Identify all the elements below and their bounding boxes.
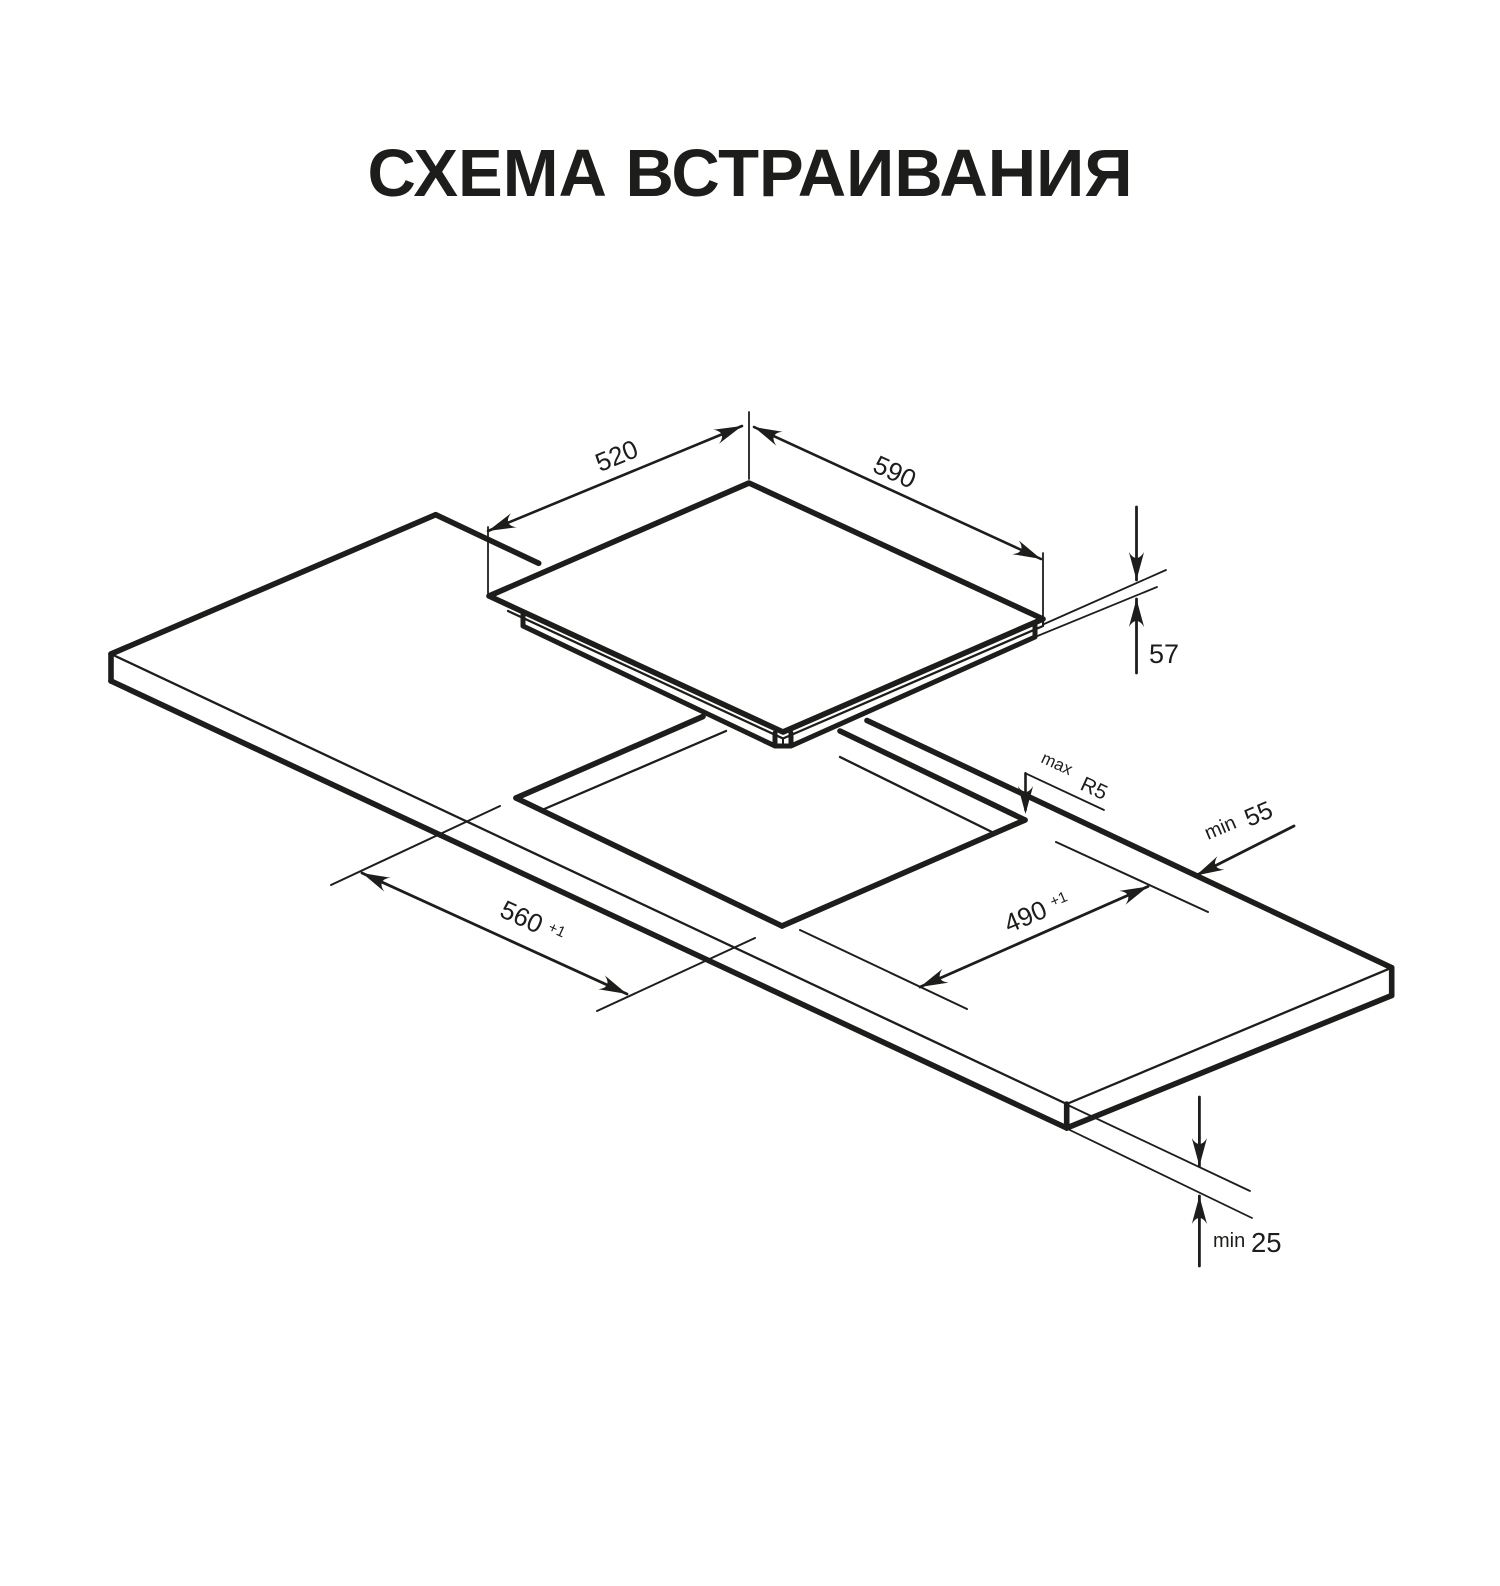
svg-text:57: 57 [1149,639,1179,669]
svg-text:min: min [1213,1230,1245,1252]
svg-text:25: 25 [1251,1227,1282,1258]
svg-text:СХЕМА ВСТРАИВАНИЯ: СХЕМА ВСТРАИВАНИЯ [368,136,1133,211]
